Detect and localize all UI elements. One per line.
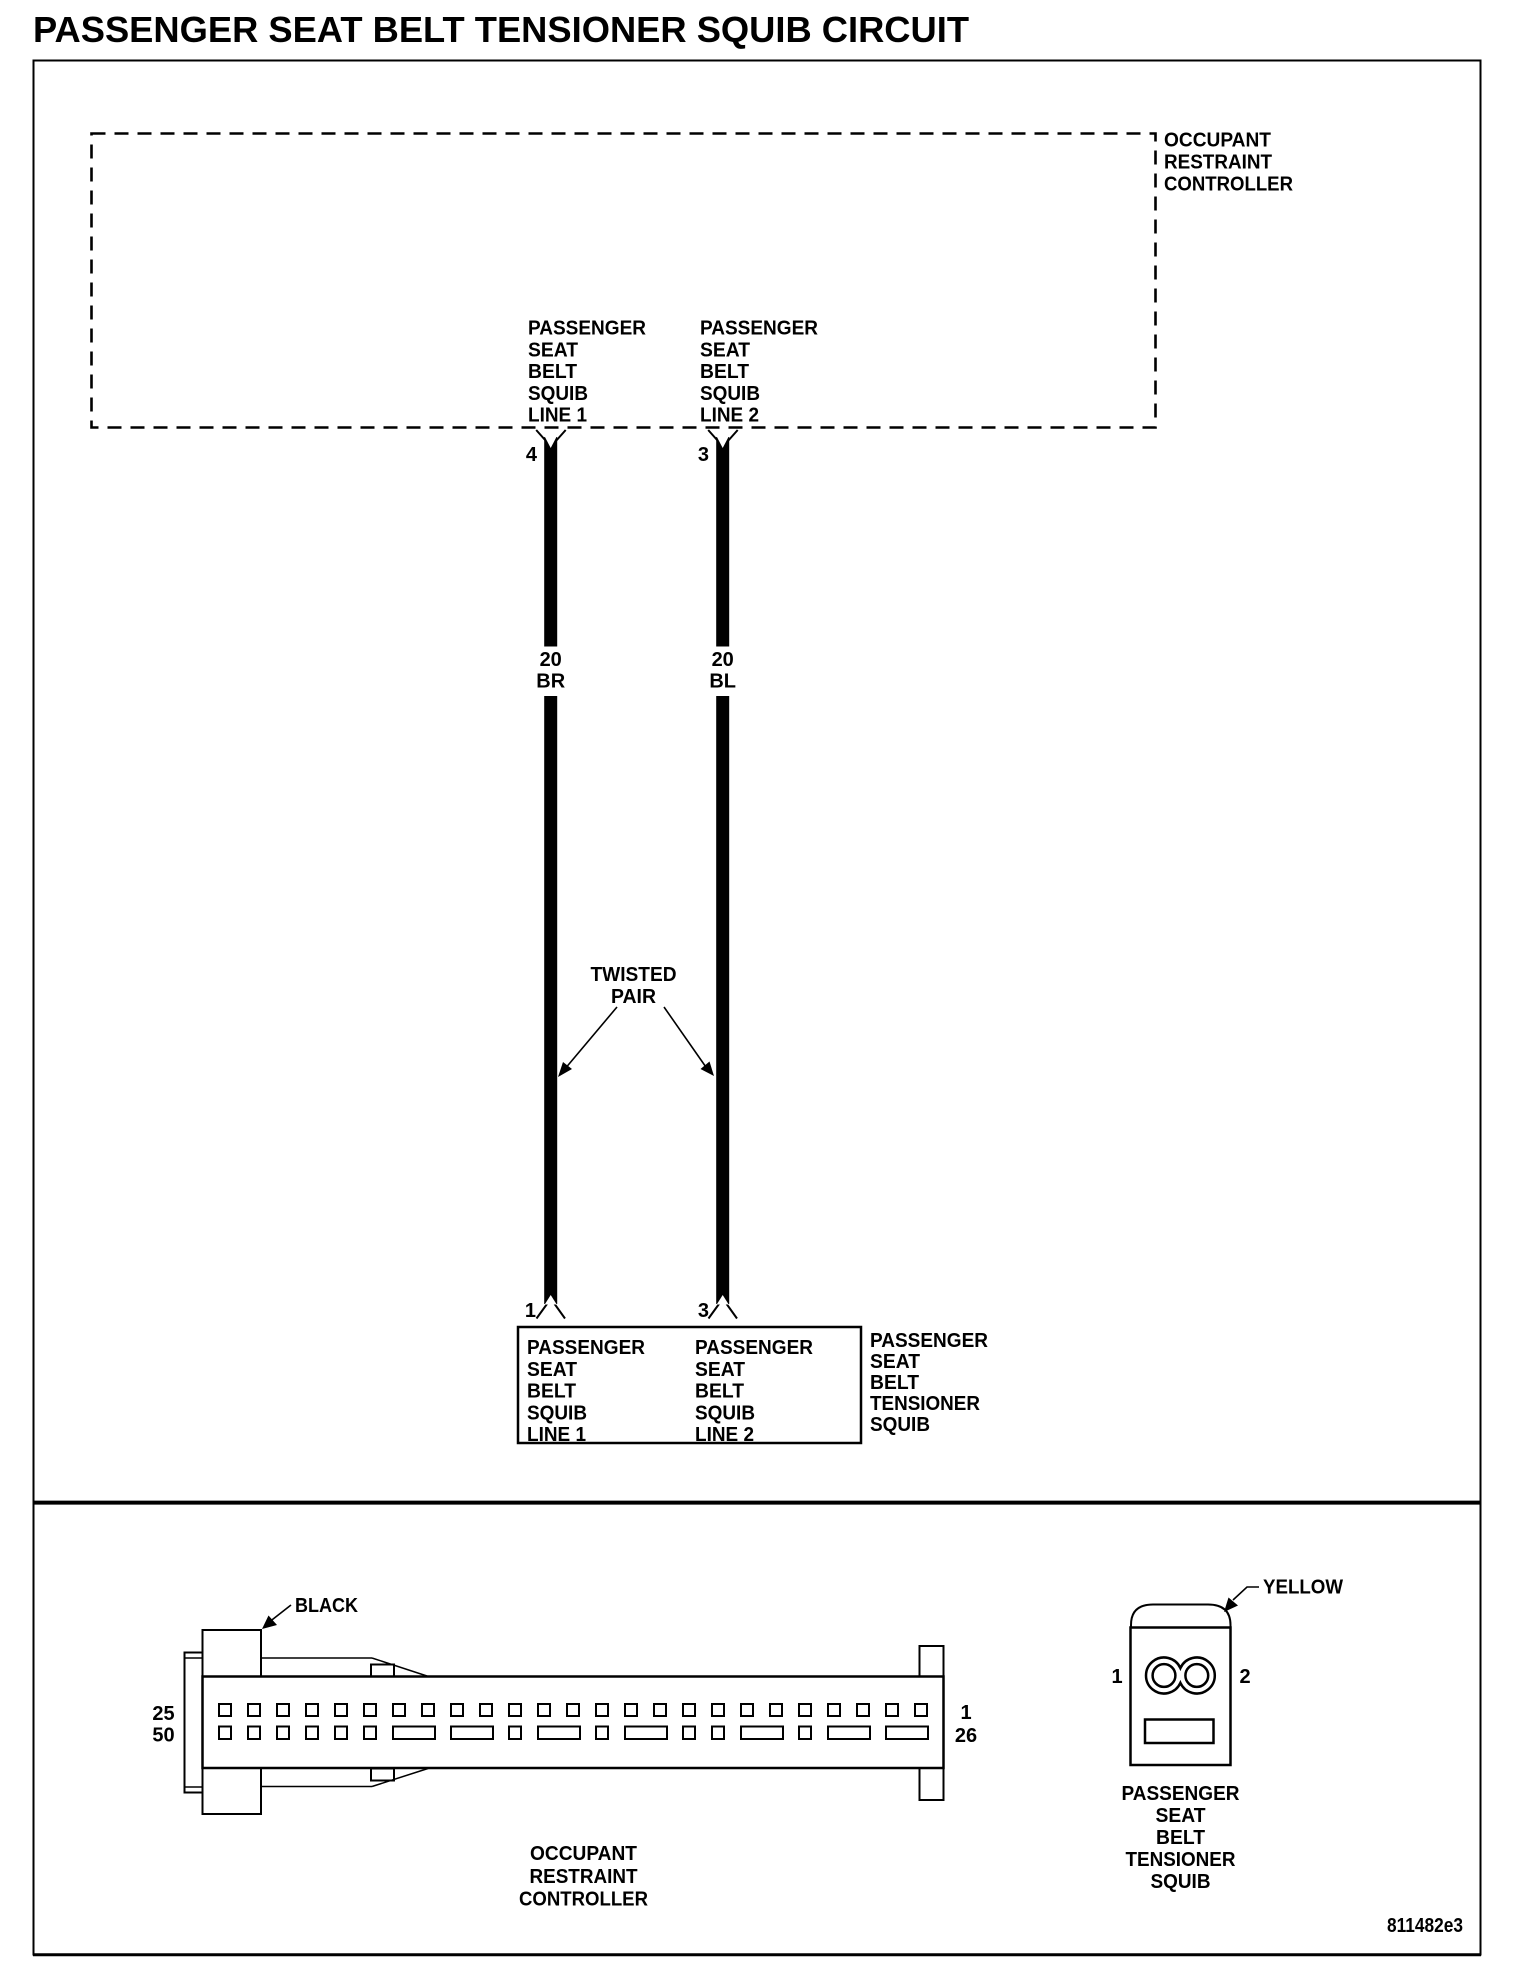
svg-text:PASSENGER: PASSENGER — [528, 318, 647, 340]
svg-text:RESTRAINT: RESTRAINT — [1164, 151, 1272, 173]
svg-text:BELT: BELT — [700, 361, 749, 383]
svg-text:26: 26 — [955, 1725, 977, 1747]
svg-text:LINE 1: LINE 1 — [528, 405, 587, 427]
svg-text:PASSENGER: PASSENGER — [695, 1337, 814, 1359]
svg-text:YELLOW: YELLOW — [1263, 1577, 1343, 1599]
svg-text:PASSENGER: PASSENGER — [700, 318, 819, 340]
svg-text:2: 2 — [1239, 1666, 1250, 1688]
svg-text:SQUIB: SQUIB — [528, 383, 588, 405]
svg-text:BR: BR — [536, 671, 565, 693]
svg-text:SQUIB: SQUIB — [527, 1402, 587, 1424]
svg-text:LINE 1: LINE 1 — [527, 1424, 586, 1446]
svg-text:811482e3: 811482e3 — [1387, 1915, 1463, 1937]
svg-text:20: 20 — [712, 649, 734, 671]
svg-text:BELT: BELT — [870, 1372, 919, 1394]
svg-text:SEAT: SEAT — [527, 1359, 577, 1381]
svg-text:SQUIB: SQUIB — [1151, 1871, 1211, 1893]
svg-text:BELT: BELT — [1156, 1827, 1205, 1849]
svg-text:OCCUPANT: OCCUPANT — [1164, 130, 1271, 152]
svg-text:1: 1 — [525, 1300, 536, 1322]
svg-text:3: 3 — [698, 444, 709, 466]
svg-text:BELT: BELT — [528, 361, 577, 383]
svg-text:BELT: BELT — [695, 1381, 744, 1403]
svg-text:BELT: BELT — [527, 1381, 576, 1403]
svg-text:TENSIONER: TENSIONER — [870, 1393, 981, 1415]
svg-text:SEAT: SEAT — [870, 1351, 920, 1373]
svg-text:BL: BL — [709, 671, 736, 693]
svg-text:PASSENGER: PASSENGER — [1122, 1783, 1241, 1805]
svg-text:20: 20 — [540, 649, 562, 671]
svg-text:PASSENGER: PASSENGER — [527, 1337, 646, 1359]
svg-text:SQUIB: SQUIB — [700, 383, 760, 405]
svg-text:PAIR: PAIR — [611, 986, 657, 1008]
svg-text:OCCUPANT: OCCUPANT — [530, 1843, 637, 1865]
svg-text:25: 25 — [152, 1703, 174, 1725]
svg-text:4: 4 — [526, 444, 538, 466]
svg-text:TENSIONER: TENSIONER — [1126, 1849, 1237, 1871]
svg-text:CONTROLLER: CONTROLLER — [1164, 173, 1294, 195]
svg-text:CONTROLLER: CONTROLLER — [519, 1889, 649, 1911]
svg-text:PASSENGER: PASSENGER — [870, 1330, 989, 1352]
svg-text:3: 3 — [698, 1300, 709, 1322]
svg-text:SEAT: SEAT — [695, 1359, 745, 1381]
svg-text:SEAT: SEAT — [528, 339, 578, 361]
svg-text:1: 1 — [1111, 1666, 1122, 1688]
svg-text:SEAT: SEAT — [1156, 1805, 1206, 1827]
svg-text:LINE 2: LINE 2 — [695, 1424, 754, 1446]
svg-text:SQUIB: SQUIB — [695, 1402, 755, 1424]
svg-text:PASSENGER SEAT BELT TENSIONER: PASSENGER SEAT BELT TENSIONER SQUIB CIRC… — [33, 9, 969, 50]
svg-text:50: 50 — [152, 1725, 174, 1747]
svg-text:BLACK: BLACK — [295, 1595, 358, 1617]
svg-text:SEAT: SEAT — [700, 339, 750, 361]
svg-text:1: 1 — [960, 1702, 971, 1724]
svg-text:RESTRAINT: RESTRAINT — [530, 1866, 638, 1888]
svg-text:SQUIB: SQUIB — [870, 1414, 930, 1436]
svg-text:TWISTED: TWISTED — [591, 964, 677, 986]
svg-text:LINE 2: LINE 2 — [700, 405, 759, 427]
